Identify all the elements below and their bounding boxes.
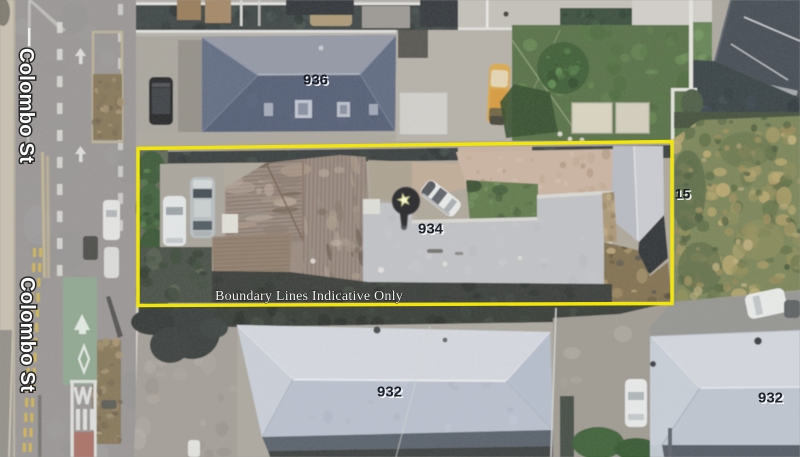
svg-text:Colombo St: Colombo St: [15, 48, 37, 163]
svg-text:932: 932: [758, 390, 783, 407]
svg-text:Colombo St: Colombo St: [16, 277, 38, 392]
svg-text:15: 15: [675, 186, 691, 202]
svg-text:932: 932: [377, 384, 402, 401]
svg-text:936: 936: [303, 72, 328, 89]
svg-text:Boundary Lines Indicative Only: Boundary Lines Indicative Only: [215, 288, 403, 304]
svg-text:934: 934: [418, 221, 444, 238]
